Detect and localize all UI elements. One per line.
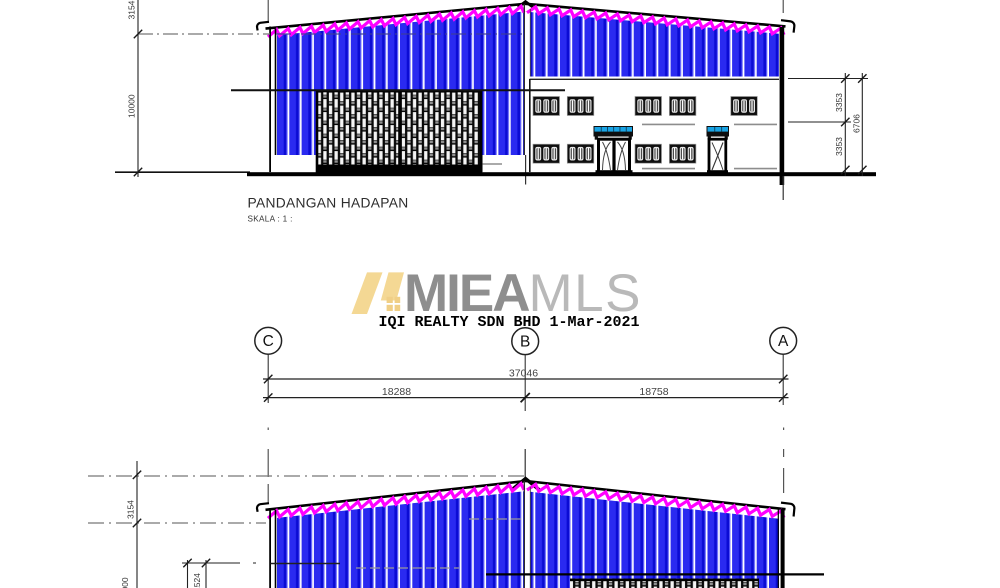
svg-text:3353: 3353 <box>834 93 844 112</box>
svg-text:3154: 3154 <box>127 0 137 19</box>
svg-text:3154: 3154 <box>126 500 136 519</box>
svg-text:18288: 18288 <box>382 386 411 398</box>
svg-text:IQI REALTY SDN BHD 1-Mar-2021: IQI REALTY SDN BHD 1-Mar-2021 <box>379 314 640 331</box>
svg-text:3353: 3353 <box>834 137 844 156</box>
svg-text:A: A <box>778 333 789 350</box>
svg-text:6706: 6706 <box>852 114 862 133</box>
svg-text:C: C <box>263 333 274 350</box>
svg-text:PANDANGAN HADAPAN: PANDANGAN HADAPAN <box>248 196 409 211</box>
svg-text:37046: 37046 <box>509 368 538 380</box>
svg-text:1524: 1524 <box>192 573 202 588</box>
svg-text:10000: 10000 <box>120 577 130 588</box>
svg-text:10000: 10000 <box>127 94 137 118</box>
svg-text:B: B <box>520 334 530 351</box>
svg-text:SKALA : 1 :: SKALA : 1 : <box>248 215 293 224</box>
svg-text:18758: 18758 <box>639 386 668 398</box>
